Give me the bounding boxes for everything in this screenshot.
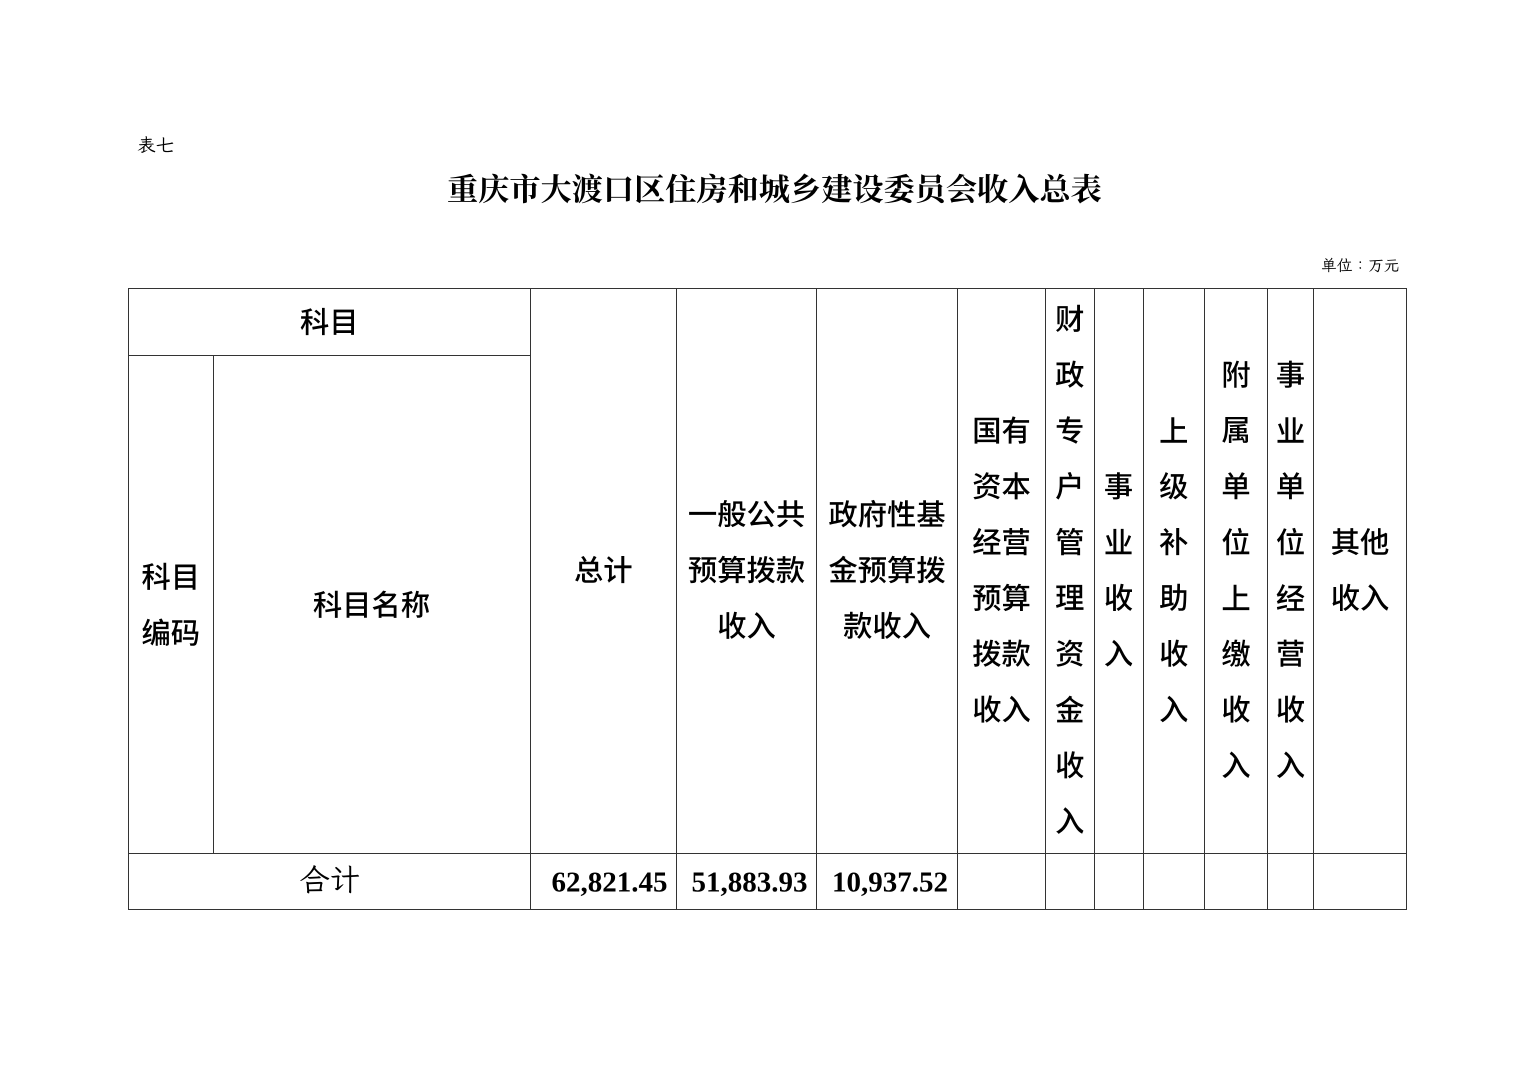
svg-text:10,937.52: 10,937.52 <box>832 867 948 899</box>
svg-text:51,883.93: 51,883.93 <box>692 867 808 899</box>
svg-text:62,821.45: 62,821.45 <box>552 867 668 899</box>
